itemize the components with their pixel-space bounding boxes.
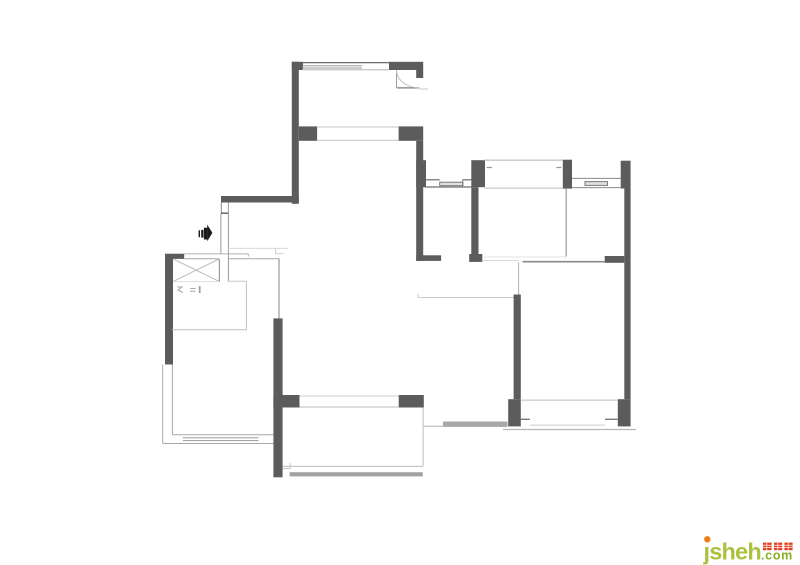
svg-text:jsheh: jsheh [703,539,761,565]
svg-text:.com: .com [761,548,793,562]
